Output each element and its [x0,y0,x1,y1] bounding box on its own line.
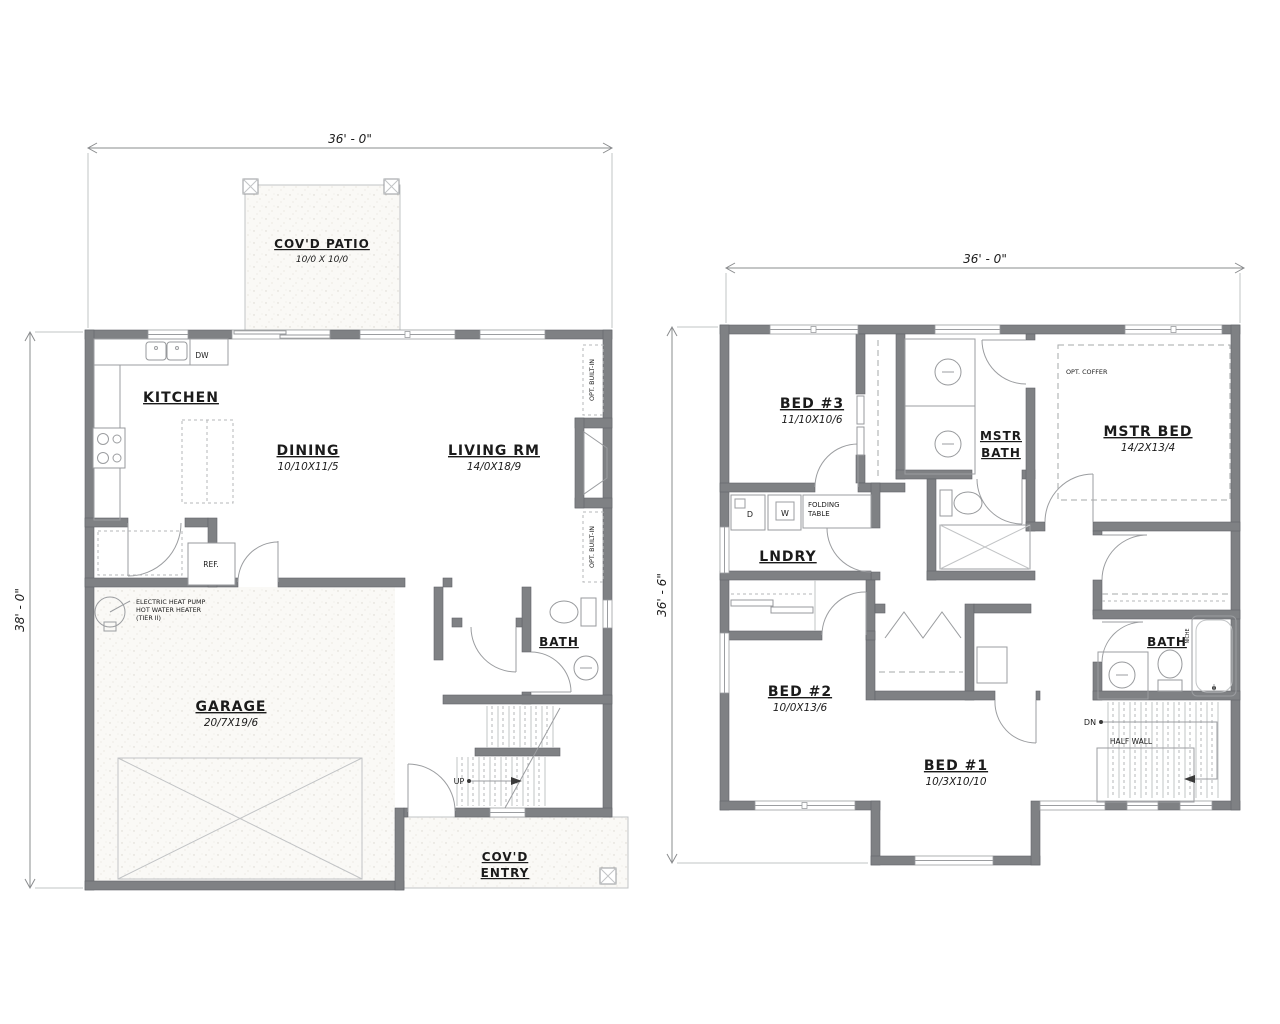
bed1-door [995,700,1036,743]
hall-closet-door [471,627,516,672]
garage-slab [94,587,395,881]
dryer-label: D [747,510,753,519]
dishwasher-label: DW [195,351,209,360]
living-label: LIVING RM [448,443,540,459]
bed3-size: 11/10X10/6 [781,414,842,426]
shower-icon [940,525,1030,569]
laundry-door [827,528,871,572]
bath-sink-icon-1f [574,656,598,680]
living-size: 14/0X18/9 [467,461,522,473]
opt-builtin-upper-label: OPT. BUILT-IN [588,359,596,401]
stove-icon [93,428,125,468]
bed2-door [822,592,866,635]
opt-coffer-label: OPT. COFFER [1066,368,1108,376]
washer-label: W [781,509,789,518]
mstr-bath-label-2: BATH [981,446,1021,460]
stair-break-line [505,708,560,808]
mstr-bath-door [982,340,1026,384]
dining-label: DINING [277,443,340,459]
mstr-bath-label-1: MSTR [980,429,1022,443]
wc-door [977,479,1022,524]
patio-label: COV'D PATIO [274,237,370,251]
bed2-label: BED #2 [768,684,832,700]
half-wall-label: HALF WALL [1110,737,1153,746]
dim-width-2f: 36' - 0" [963,252,1007,266]
entry-label-1: COV'D [482,850,529,864]
bath-2f-fixtures [1098,616,1236,699]
kitchen-sink-icon [146,342,187,360]
entry-door [408,764,455,812]
water-heater-note-1: ELECTRIC HEAT PUMP [136,598,206,606]
linen-closet [977,647,1007,683]
toilet-icon-wc [940,490,982,516]
patio-slider-door [232,330,330,339]
kitchen-fixtures [93,339,235,585]
floor-plan-page: 36' - 0" 38' - 0" COV'D PATIO 10/0 X 10/… [0,0,1280,1024]
bed2-closet [731,580,815,631]
mstr-bed-size: 14/2X13/4 [1121,442,1175,454]
patio-size: 10/0 X 10/0 [296,255,349,265]
water-heater-note-2: HOT WATER HEATER [136,606,202,614]
bed1-size: 10/3X10/10 [925,776,986,788]
garage-label: GARAGE [196,699,267,715]
refrigerator-label: REF. [203,560,218,569]
first-floor-concrete-areas [94,185,628,888]
toilet-icon-1f [550,598,596,626]
hall-bifold-closet [879,612,963,672]
second-floor-plan: 36' - 0" 36' - 6" BED #3 11/10X10/6 MSTR… [655,252,1244,865]
bath-door-1f [531,652,571,692]
up-label: UP [454,777,465,786]
folding-table-label-1: FOLDING [808,501,840,509]
bed3-label: BED #3 [780,396,844,412]
garage-size: 20/7X19/6 [204,717,259,729]
stairs-up-1f [457,706,560,808]
mstr-closet-door [1102,535,1147,580]
water-heater-note-3: (TIER II) [136,614,161,622]
bath-2f-door [1102,622,1143,662]
garage-door-to-house [238,541,278,582]
bed2-size: 10/0X13/6 [773,702,828,714]
first-floor-plan: 36' - 0" 38' - 0" COV'D PATIO 10/0 X 10/… [13,132,628,890]
bath-1f-label: BATH [539,635,579,649]
entry-label-2: ENTRY [481,866,530,880]
bed3-door [815,444,858,487]
mstr-bed-label: MSTR BED [1103,424,1192,440]
bath-2f-label: BATH [1147,635,1187,649]
dn-label: DN [1084,718,1096,727]
mstr-closet-shelving [1102,594,1228,601]
bed1-label: BED #1 [924,758,988,774]
pantry-shelves [98,531,182,575]
kitchen-label: KITCHEN [143,390,219,406]
opt-builtin-lower-label: OPT. BUILT-IN [588,526,596,568]
lndry-label: LNDRY [759,549,816,565]
dim-width-1f: 36' - 0" [328,132,372,146]
toilet-icon-2f [1158,650,1182,691]
stairs-down-2f [1097,702,1218,802]
dim-height-1f: 38' - 0" [13,588,27,632]
dim-height-2f: 36' - 6" [655,573,669,617]
bathtub-icon [1192,616,1236,696]
kitchen-island [182,420,233,503]
mstr-bed-door [1045,474,1093,522]
floor-plan-drawing: 36' - 0" 38' - 0" COV'D PATIO 10/0 X 10/… [0,0,1280,1024]
niche-label: NICHE [1185,629,1191,644]
dining-size: 10/10X11/5 [277,461,338,473]
folding-table-label-2: TABLE [807,510,830,518]
